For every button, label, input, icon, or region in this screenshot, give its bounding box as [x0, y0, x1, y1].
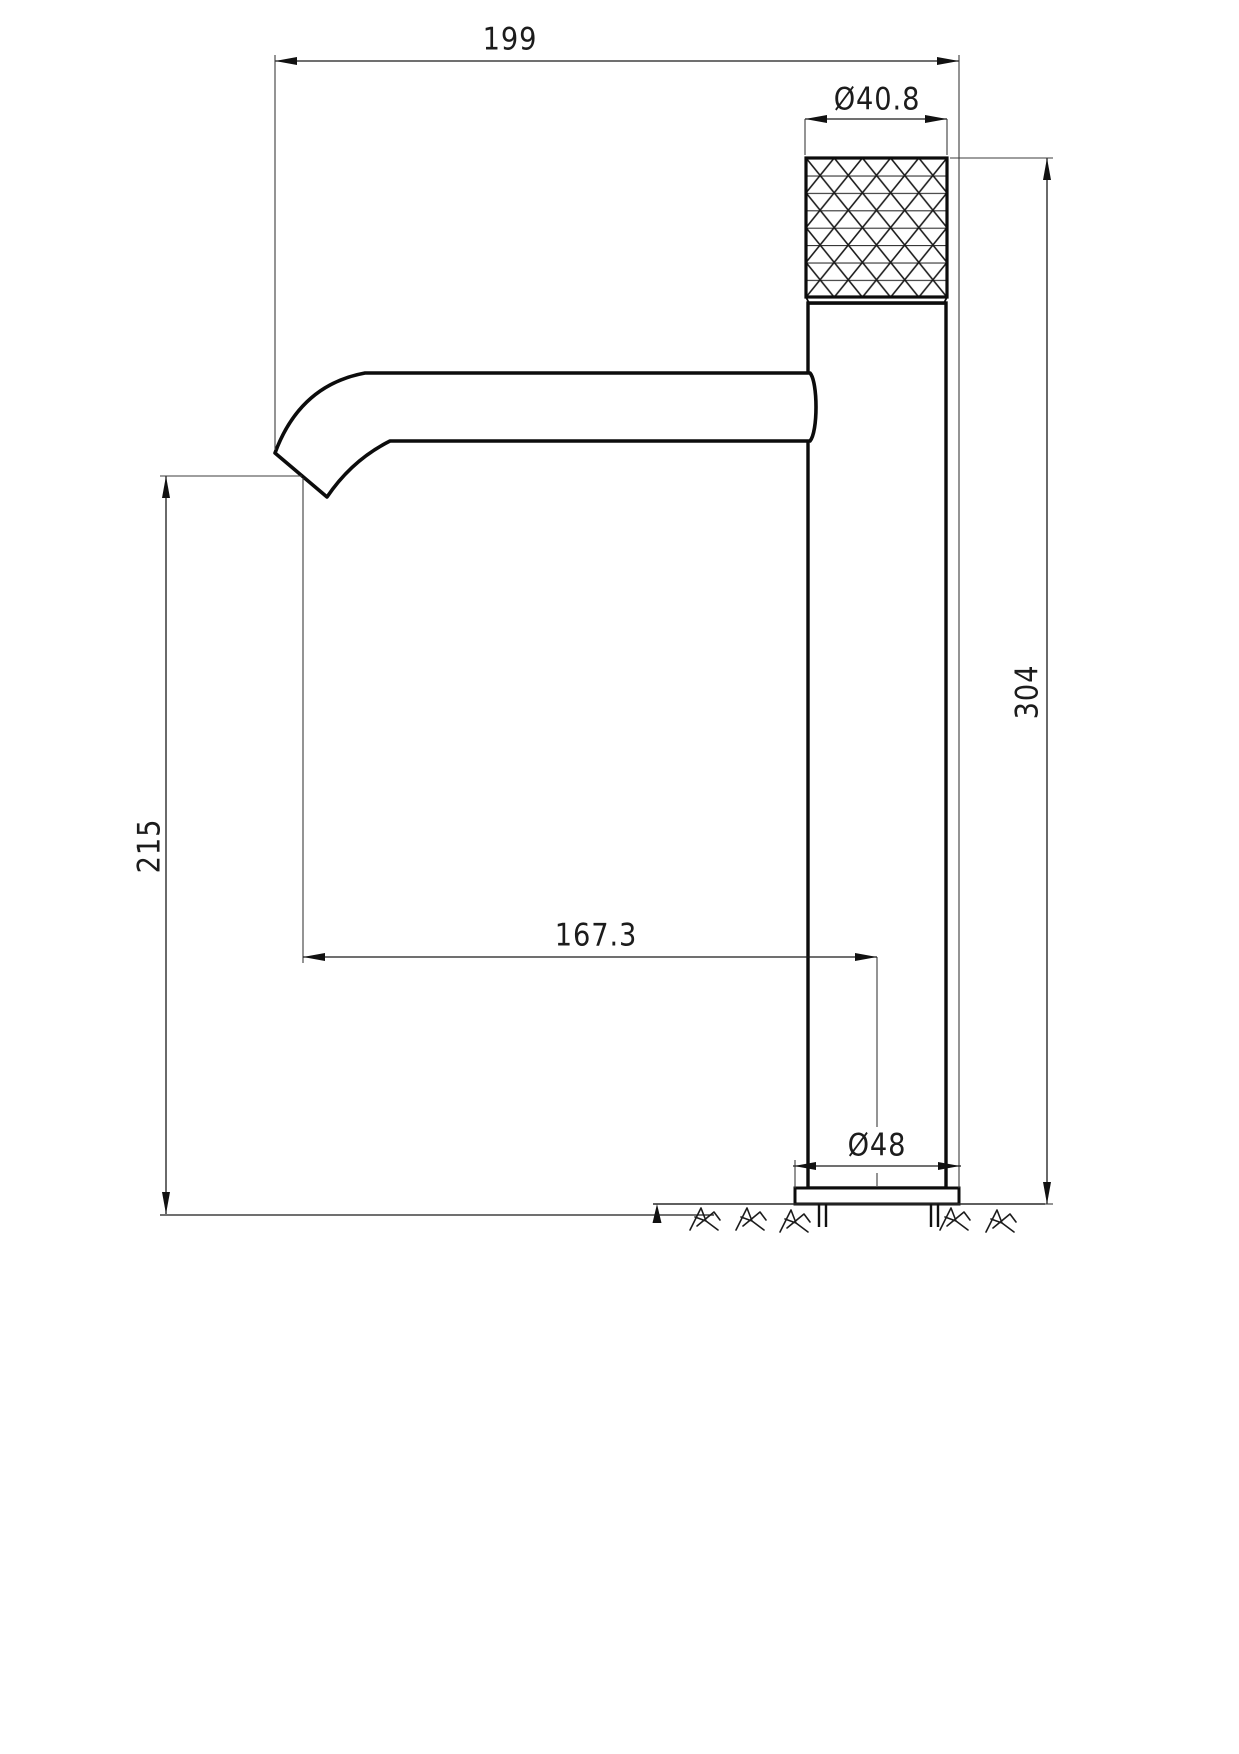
spout	[275, 373, 816, 497]
dim-167-3	[303, 478, 877, 1127]
dim-40-8	[805, 115, 947, 155]
knurled-handle	[806, 158, 947, 297]
dim-label-handle-diameter: Ø40.8	[834, 85, 921, 116]
technical-drawing-canvas	[0, 0, 1239, 1754]
dim-label-spout-height: 215	[135, 819, 166, 874]
counter-line	[653, 1204, 1046, 1232]
dim-label-overall-reach: 199	[483, 25, 538, 56]
dim-label-spout-projection: 167.3	[555, 921, 638, 952]
dim-label-overall-height: 304	[1013, 665, 1044, 720]
base-flange	[795, 1188, 959, 1204]
counter-datum-arrow	[653, 1204, 662, 1223]
mounting-pipes	[819, 1204, 938, 1227]
dim-215	[160, 476, 714, 1215]
drawing-sheet: 199 Ø40.8 304 215 167.3 Ø48	[0, 0, 1239, 1754]
dim-label-base-diameter: Ø48	[848, 1131, 907, 1162]
